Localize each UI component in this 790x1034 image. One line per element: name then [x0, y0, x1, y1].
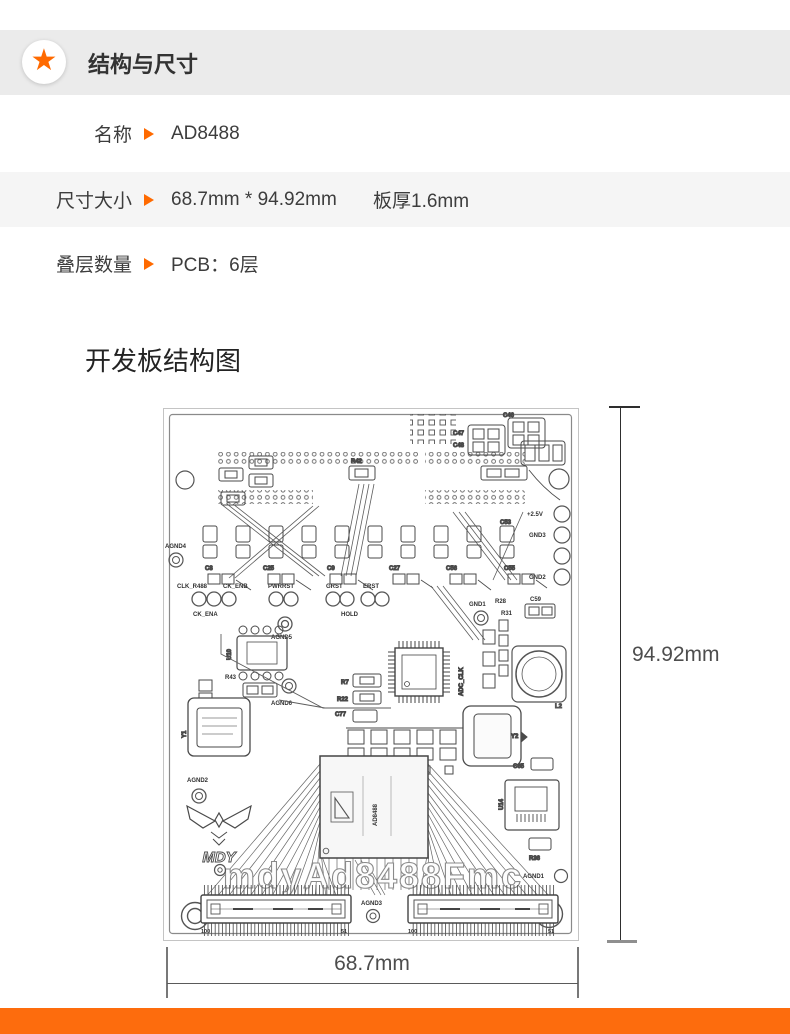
- arrow-right-icon: [144, 128, 154, 140]
- spec-row-name: 名称 AD8488: [0, 95, 790, 172]
- spec-value: AD8488: [171, 95, 240, 172]
- label-c65: C65: [513, 764, 525, 770]
- label-u14: U14: [499, 798, 505, 810]
- pin-label-51: 51: [548, 929, 554, 935]
- label-l2: L2: [555, 704, 563, 710]
- label-bga-chip: AD8488: [373, 803, 379, 826]
- label-c47: C47: [453, 431, 465, 437]
- arrow-right-icon: [144, 194, 154, 206]
- label-c53: C53: [500, 520, 512, 526]
- label-adc-clk: ADC_CLK: [459, 667, 465, 696]
- spec-label: 叠层数量: [0, 227, 132, 300]
- arrow-right-icon: [144, 258, 154, 270]
- label-c48: C48: [453, 443, 465, 449]
- label-c59: C59: [530, 597, 542, 603]
- spec-label: 尺寸大小: [0, 172, 132, 227]
- star-icon: ★: [31, 46, 58, 76]
- pin-label-51: 51: [341, 929, 347, 935]
- label-c25: C25: [263, 566, 275, 572]
- label-r7: R7: [341, 680, 349, 686]
- pin-label-100: 100: [201, 929, 210, 935]
- pcb-structure-diagram: C47 C48 C46 R42 +2.5V GND3 GND2 AGND4: [163, 408, 579, 941]
- spec-row-layers: 叠层数量 PCB：6层: [0, 227, 790, 300]
- label-r22: R22: [337, 697, 349, 703]
- label-gnd2: GND2: [529, 575, 546, 581]
- label-clk-r488: CLK_R488: [177, 584, 208, 590]
- label-c8: C8: [205, 566, 213, 572]
- height-dimension-tick-top: [609, 406, 640, 408]
- label-r36: R36: [529, 856, 541, 862]
- label-c27: C27: [389, 566, 401, 572]
- label-2v5: +2.5V: [527, 512, 543, 518]
- spec-value-extra: 板厚1.6mm: [373, 172, 469, 227]
- label-c56: C56: [446, 566, 458, 572]
- label-y1: Y1: [182, 730, 188, 738]
- spec-label: 名称: [0, 95, 132, 172]
- star-badge: ★: [22, 40, 66, 84]
- diagram-heading: 开发板结构图: [85, 341, 241, 378]
- label-pwrrst: PWRRST: [268, 584, 294, 590]
- section-title: 结构与尺寸: [88, 30, 198, 95]
- width-dimension-label: 68.7mm: [166, 952, 578, 976]
- spec-value: 68.7mm * 94.92mm: [171, 172, 337, 227]
- footer-accent-bar: [0, 1008, 790, 1034]
- label-r28: R28: [495, 599, 507, 605]
- label-grst: GRST: [326, 584, 343, 590]
- label-u10: U10: [227, 648, 233, 660]
- svg-text:AGND1: AGND1: [523, 874, 545, 880]
- label-r42: R42: [351, 459, 363, 465]
- label-y2: Y2: [511, 734, 519, 740]
- label-r31: R31: [501, 611, 513, 617]
- label-ck-enb: CK_ENB: [223, 584, 248, 590]
- label-c46: C46: [503, 413, 515, 419]
- svg-text:AGND4: AGND4: [165, 544, 187, 550]
- spec-value: PCB：6层: [171, 227, 259, 300]
- label-ck-ena: CK_ENA: [193, 612, 218, 618]
- label-erst: ERST: [363, 584, 379, 590]
- fmc-connector-right: 100 51: [408, 885, 558, 936]
- width-dimension-line: [167, 983, 578, 984]
- label-c9: C9: [327, 566, 335, 572]
- height-dimension-label: 94.92mm: [632, 643, 720, 667]
- label-gnd1: GND1: [469, 602, 486, 608]
- label-c55: C55: [504, 566, 516, 572]
- svg-text:AGND3: AGND3: [361, 901, 383, 907]
- spec-row-size: 尺寸大小 68.7mm * 94.92mm 板厚1.6mm: [0, 172, 790, 227]
- label-c77: C77: [335, 712, 347, 718]
- label-r43: R43: [225, 675, 237, 681]
- height-dimension-tick-bottom: [607, 940, 637, 943]
- section-header-bar: ★ 结构与尺寸: [0, 30, 790, 95]
- pin-label-100: 100: [408, 929, 417, 935]
- label-gnd3: GND3: [529, 533, 546, 539]
- height-dimension-line: [620, 407, 621, 942]
- svg-text:AGND2: AGND2: [187, 778, 209, 784]
- fmc-connector-left: 100 51: [201, 885, 351, 936]
- label-hold: HOLD: [341, 612, 359, 618]
